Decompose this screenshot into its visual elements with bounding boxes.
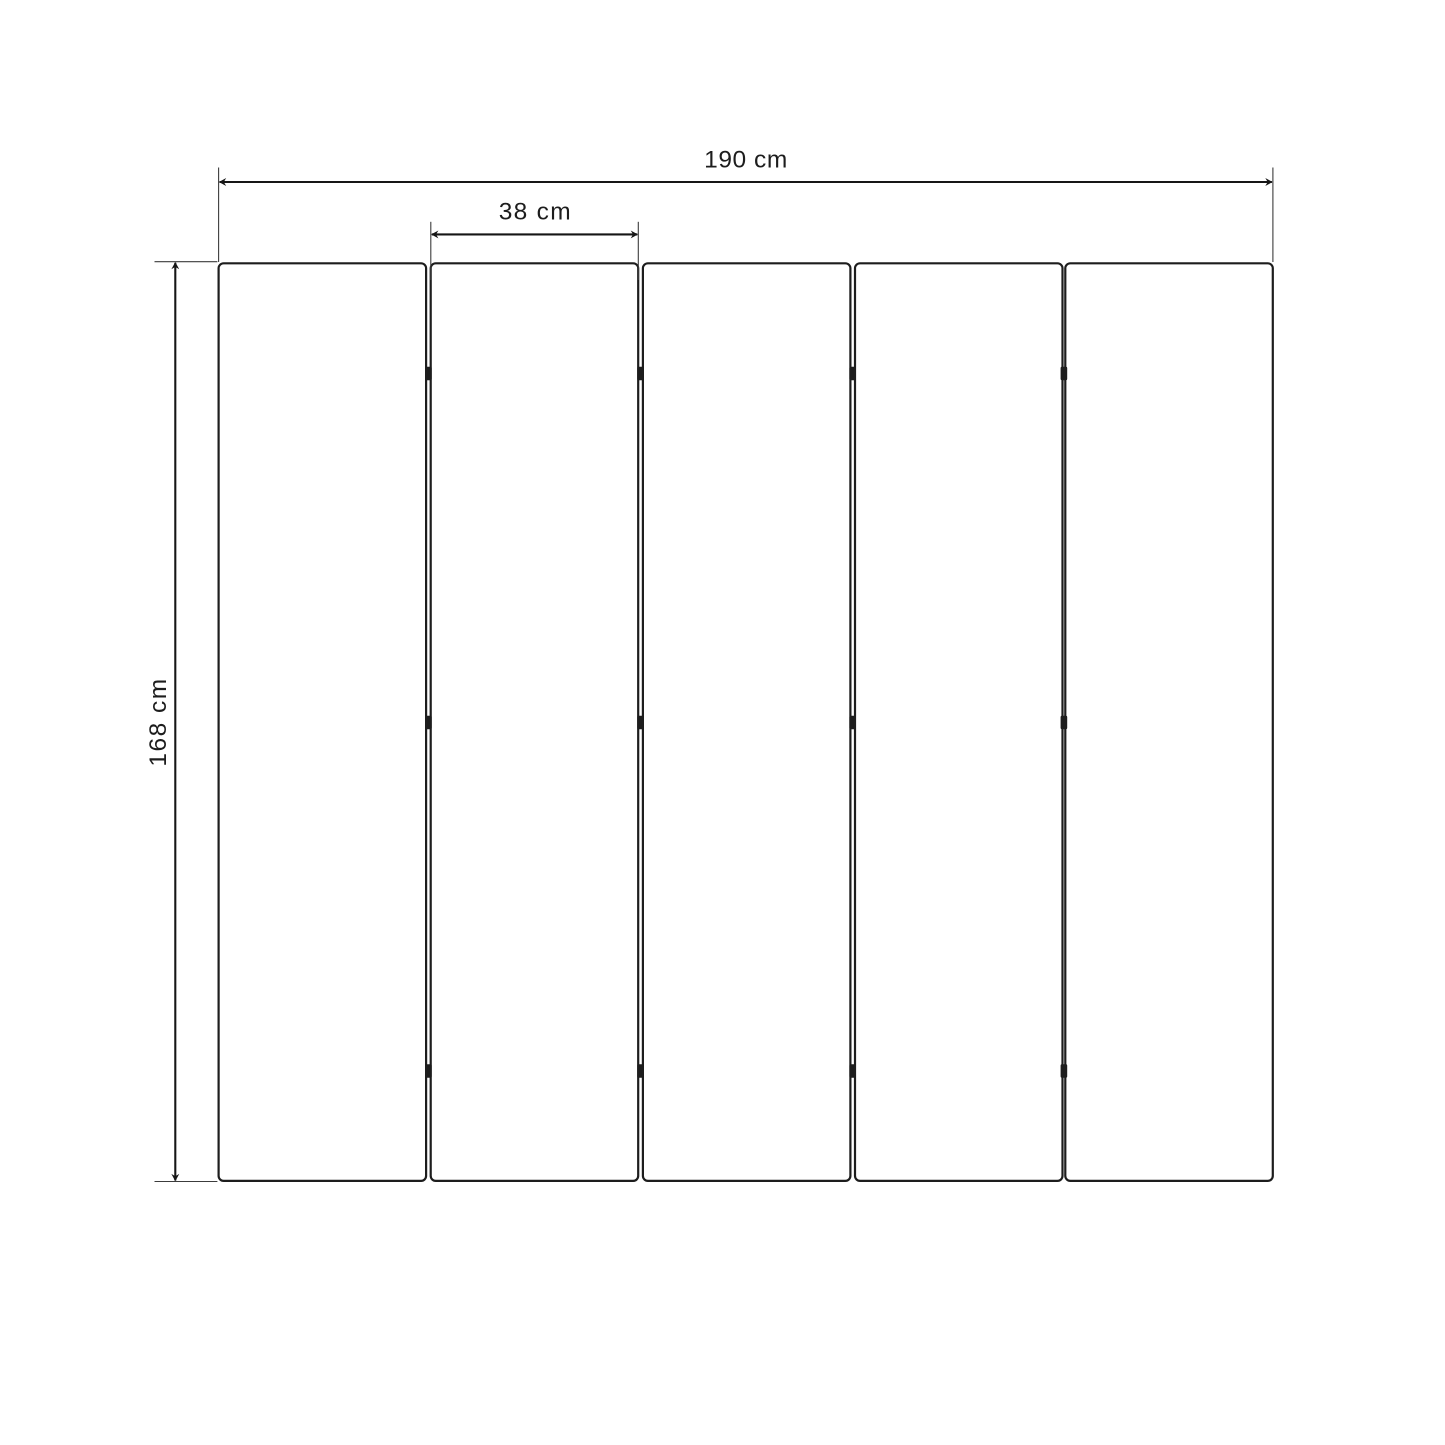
- svg-text:38 cm: 38 cm: [499, 199, 572, 226]
- svg-text:168 cm: 168 cm: [145, 677, 172, 766]
- svg-text:190 cm: 190 cm: [704, 147, 788, 174]
